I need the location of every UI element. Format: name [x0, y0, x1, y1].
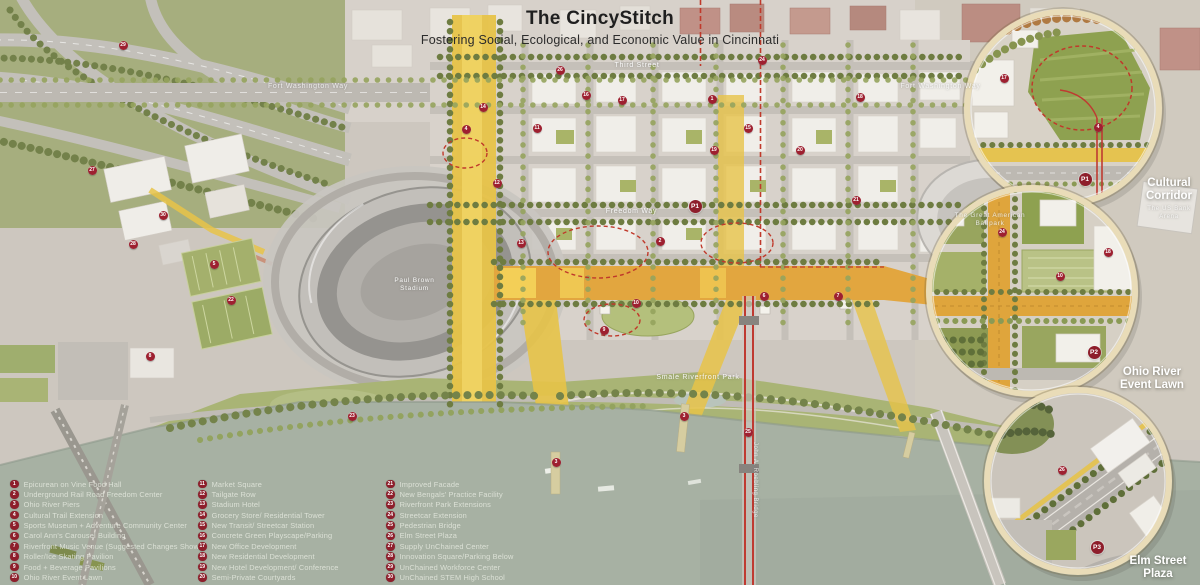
legend-item-label: Innovation Square/Parking Below: [400, 552, 514, 561]
map-marker: 27: [88, 166, 97, 175]
legend-item-label: Roller/Ice Skating Pavilion: [24, 552, 114, 561]
inset-label-ohio-river-event-lawn: Ohio River Event Lawn: [1106, 366, 1198, 392]
legend-item: 1Epicurean on Vine Food Hall: [10, 479, 190, 489]
legend-item-label: Improved Facade: [400, 480, 460, 489]
legend-item-number-badge: 12: [198, 490, 207, 499]
legend-item: 17New Office Development: [198, 541, 378, 551]
legend-item-label: Ohio River Event Lawn: [24, 573, 103, 582]
map-marker: 18: [856, 93, 865, 102]
legend-item: 4Cultural Trail Extension: [10, 510, 190, 520]
legend-item-number-badge: 6: [10, 532, 19, 541]
label-great-american-ballpark: The Great American Ballpark: [942, 212, 1038, 228]
map-marker: 21: [852, 196, 861, 205]
legend-item: 9Food + Beverage Pavilions: [10, 562, 190, 572]
legend-item-number-badge: 28: [386, 552, 395, 561]
legend-item: 7Riverfront Music Venue (Suggested Chang…: [10, 541, 190, 551]
map-marker: 18: [1104, 248, 1113, 257]
map-marker: 17: [1000, 74, 1009, 83]
legend-item-number-badge: 20: [198, 573, 207, 582]
legend-item-label: Epicurean on Vine Food Hall: [24, 480, 122, 489]
map-marker: 17: [618, 96, 627, 105]
legend-item-number-badge: 24: [386, 511, 395, 520]
legend-item-label: Carol Ann's Carousel Building: [24, 531, 126, 540]
legend-item: 3Ohio River Piers: [10, 500, 190, 510]
plaza-marker-p2: P2: [1088, 346, 1101, 359]
map-marker: 2: [656, 237, 665, 246]
legend-item-label: Concrete Green Playscape/Parking: [212, 531, 333, 540]
map-marker: 4: [1094, 123, 1103, 132]
legend-item: 29UnChained Workforce Center: [386, 562, 566, 572]
legend-item-label: Sports Museum + Adventure Community Cent…: [24, 521, 187, 530]
label-fort-washington-way-left: Fort Washington Way: [248, 83, 368, 92]
legend-item: 11Market Square: [198, 479, 378, 489]
legend-item: 19New Hotel Development/ Conference: [198, 562, 378, 572]
legend-item-number-badge: 21: [386, 480, 395, 489]
legend-column: 1Epicurean on Vine Food Hall2Underground…: [10, 479, 190, 583]
legend-item-label: Supply UnChained Center: [400, 542, 489, 551]
legend-item: 28Innovation Square/Parking Below: [386, 552, 566, 562]
legend-item-number-badge: 14: [198, 511, 207, 520]
legend-item: 5Sports Museum + Adventure Community Cen…: [10, 521, 190, 531]
highway-interchange: [0, 0, 350, 228]
map-marker: 11: [533, 124, 542, 133]
map-marker: 8: [146, 352, 155, 361]
label-fort-washington-way-right: Fort Washington Way: [878, 83, 1003, 92]
map-marker: 6: [760, 292, 769, 301]
legend-item-label: Elm Street Plaza: [400, 531, 457, 540]
map-marker: 20: [796, 146, 805, 155]
legend-item-number-badge: 7: [10, 542, 19, 551]
legend-item: 24Streetcar Extension: [386, 510, 566, 520]
legend-item-number-badge: 1: [10, 480, 19, 489]
legend-item-label: UnChained Workforce Center: [400, 563, 501, 572]
map-marker: 24: [998, 228, 1007, 237]
label-us-bank-arena: The US Bank Arena: [1138, 206, 1200, 221]
map-marker: 12: [493, 179, 502, 188]
map-marker: 30: [159, 211, 168, 220]
legend-item: 15New Transit/ Streetcar Station: [198, 521, 378, 531]
legend-item-number-badge: 5: [10, 521, 19, 530]
label-freedom-way: Freedom Way: [584, 208, 679, 217]
legend-item: 22New Bengals' Practice Facility: [386, 489, 566, 499]
map-marker: 9: [600, 326, 609, 335]
legend-item: 20Semi-Private Courtyards: [198, 573, 378, 583]
legend-column: 11Market Square12Tailgate Row13Stadium H…: [198, 479, 378, 583]
map-marker: 3: [680, 412, 689, 421]
legend-item-number-badge: 22: [386, 490, 395, 499]
legend-item-label: Underground Rail Road Freedom Center: [24, 490, 163, 499]
legend-item-number-badge: 4: [10, 511, 19, 520]
legend-item: 26Elm Street Plaza: [386, 531, 566, 541]
legend-item-number-badge: 8: [10, 552, 19, 561]
legend-item-number-badge: 11: [198, 480, 207, 489]
map-marker: 26: [1058, 466, 1067, 475]
legend-item-number-badge: 9: [10, 563, 19, 572]
legend-item-number-badge: 23: [386, 500, 395, 509]
legend-item-label: New Transit/ Streetcar Station: [212, 521, 315, 530]
legend-item-label: New Hotel Development/ Conference: [212, 563, 339, 572]
legend-item-number-badge: 13: [198, 500, 207, 509]
legend-item-label: Semi-Private Courtyards: [212, 573, 296, 582]
legend-item-label: New Residential Development: [212, 552, 315, 561]
legend-item-label: Ohio River Piers: [24, 500, 80, 509]
legend-item-label: Tailgate Row: [212, 490, 256, 499]
legend-item-number-badge: 30: [386, 573, 395, 582]
legend-item: 21Improved Facade: [386, 479, 566, 489]
legend-item: 6Carol Ann's Carousel Building: [10, 531, 190, 541]
map-marker: 23: [348, 412, 357, 421]
legend-item-number-badge: 2: [10, 490, 19, 499]
map-marker: 16: [582, 91, 591, 100]
legend-item-label: Stadium Hotel: [212, 500, 260, 509]
legend-item-number-badge: 26: [386, 532, 395, 541]
legend-item-label: Riverfront Music Venue (Suggested Change…: [24, 542, 206, 551]
legend-item-label: New Bengals' Practice Facility: [400, 490, 503, 499]
legend-item-number-badge: 16: [198, 532, 207, 541]
legend-item-label: Cultural Trail Extension: [24, 511, 104, 520]
map-marker: 15: [744, 124, 753, 133]
inset-label-cultural-corridor: Cultural Corridor: [1126, 177, 1200, 203]
legend-item: 8Roller/Ice Skating Pavilion: [10, 552, 190, 562]
legend-item-label: Riverfront Park Extensions: [400, 500, 491, 509]
legend-item: 18New Residential Development: [198, 552, 378, 562]
legend-item-number-badge: 10: [10, 573, 19, 582]
legend-item: 27Supply UnChained Center: [386, 541, 566, 551]
plaza-marker-p1: P1: [1079, 173, 1092, 186]
legend-item-number-badge: 29: [386, 563, 395, 572]
plaza-marker-p3: P3: [1091, 541, 1104, 554]
label-third-street: Third Street: [592, 62, 682, 71]
map-marker: 4: [462, 125, 471, 134]
label-smale-riverfront-park: Smale Riverfront Park: [638, 374, 758, 383]
map-marker: 14: [479, 103, 488, 112]
legend-item-number-badge: 15: [198, 521, 207, 530]
legend-item-number-badge: 18: [198, 552, 207, 561]
legend-item-label: Market Square: [212, 480, 262, 489]
plaza-marker-p1: P1: [689, 200, 702, 213]
map-marker: 10: [1056, 272, 1065, 281]
map-marker: 3: [552, 458, 561, 467]
legend-item-label: UnChained STEM High School: [400, 573, 505, 582]
map-marker: 24: [758, 56, 767, 65]
legend-item: 2Underground Rail Road Freedom Center: [10, 489, 190, 499]
legend-item: 14Grocery Store/ Residential Tower: [198, 510, 378, 520]
map-marker: 26: [556, 66, 565, 75]
legend-item: 13Stadium Hotel: [198, 500, 378, 510]
legend-item: 16Concrete Green Playscape/Parking: [198, 531, 378, 541]
map-marker: 25: [744, 428, 753, 437]
legend-item: 10Ohio River Event Lawn: [10, 573, 190, 583]
legend-item: 23Riverfront Park Extensions: [386, 500, 566, 510]
legend-item: 12Tailgate Row: [198, 489, 378, 499]
map-marker: 29: [119, 41, 128, 50]
legend-item-label: New Office Development: [212, 542, 297, 551]
legend-item: 25Pedestrian Bridge: [386, 521, 566, 531]
legend-item-label: Grocery Store/ Residential Tower: [212, 511, 325, 520]
legend-column: 21Improved Facade22New Bengals' Practice…: [386, 479, 566, 583]
legend-item-number-badge: 3: [10, 500, 19, 509]
legend-item-number-badge: 19: [198, 563, 207, 572]
map-marker: 19: [710, 146, 719, 155]
masterplan-canvas: The CincyStitch Fostering Social, Ecolog…: [0, 0, 1200, 585]
map-marker: 10: [632, 299, 641, 308]
map-marker: 28: [129, 240, 138, 249]
legend-item-number-badge: 27: [386, 542, 395, 551]
inset-label-elm-street-plaza: Elm Street Plaza: [1116, 555, 1200, 581]
map-marker: 1: [708, 95, 717, 104]
legend-item-label: Food + Beverage Pavilions: [24, 563, 116, 572]
map-marker: 13: [517, 239, 526, 248]
map-marker: 7: [834, 292, 843, 301]
label-paul-brown-stadium: Paul Brown Stadium: [372, 277, 457, 293]
legend-item-label: Pedestrian Bridge: [400, 521, 461, 530]
legend-item-label: Streetcar Extension: [400, 511, 467, 520]
legend: 1Epicurean on Vine Food Hall2Underground…: [10, 479, 566, 583]
legend-item-number-badge: 17: [198, 542, 207, 551]
map-marker: 22: [227, 296, 236, 305]
label-roebling-bridge: John A. Roebling Bridge: [751, 442, 759, 562]
legend-item: 30UnChained STEM High School: [386, 573, 566, 583]
legend-item-number-badge: 25: [386, 521, 395, 530]
map-marker: 5: [210, 260, 219, 269]
